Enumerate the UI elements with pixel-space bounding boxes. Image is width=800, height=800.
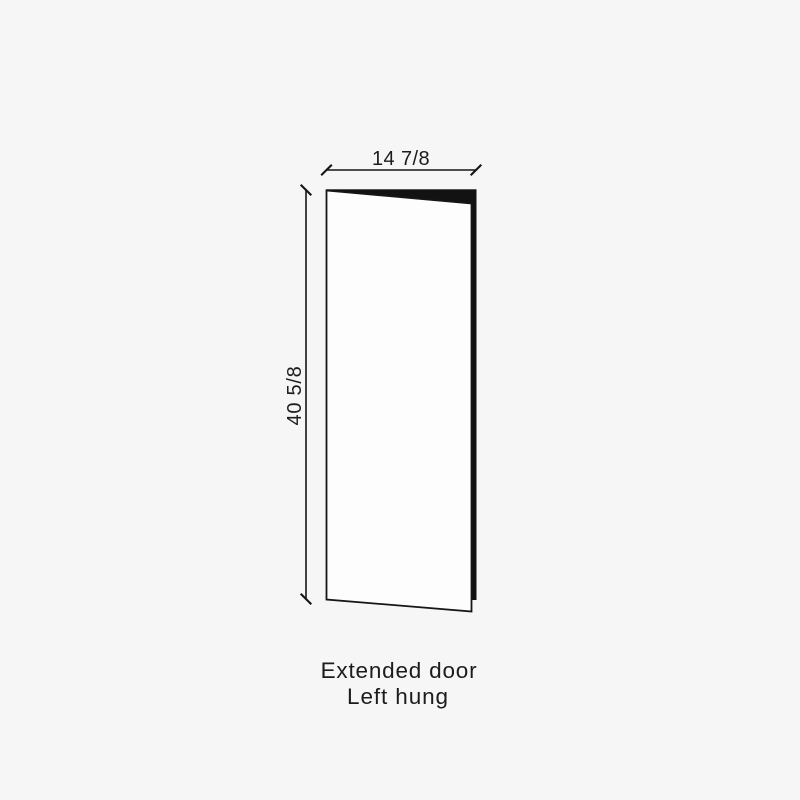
- svg-text:Left hung: Left hung: [347, 684, 449, 709]
- svg-text:Extended door: Extended door: [321, 658, 478, 683]
- svg-text:40 5/8: 40 5/8: [284, 365, 306, 425]
- svg-text:14 7/8: 14 7/8: [372, 148, 430, 170]
